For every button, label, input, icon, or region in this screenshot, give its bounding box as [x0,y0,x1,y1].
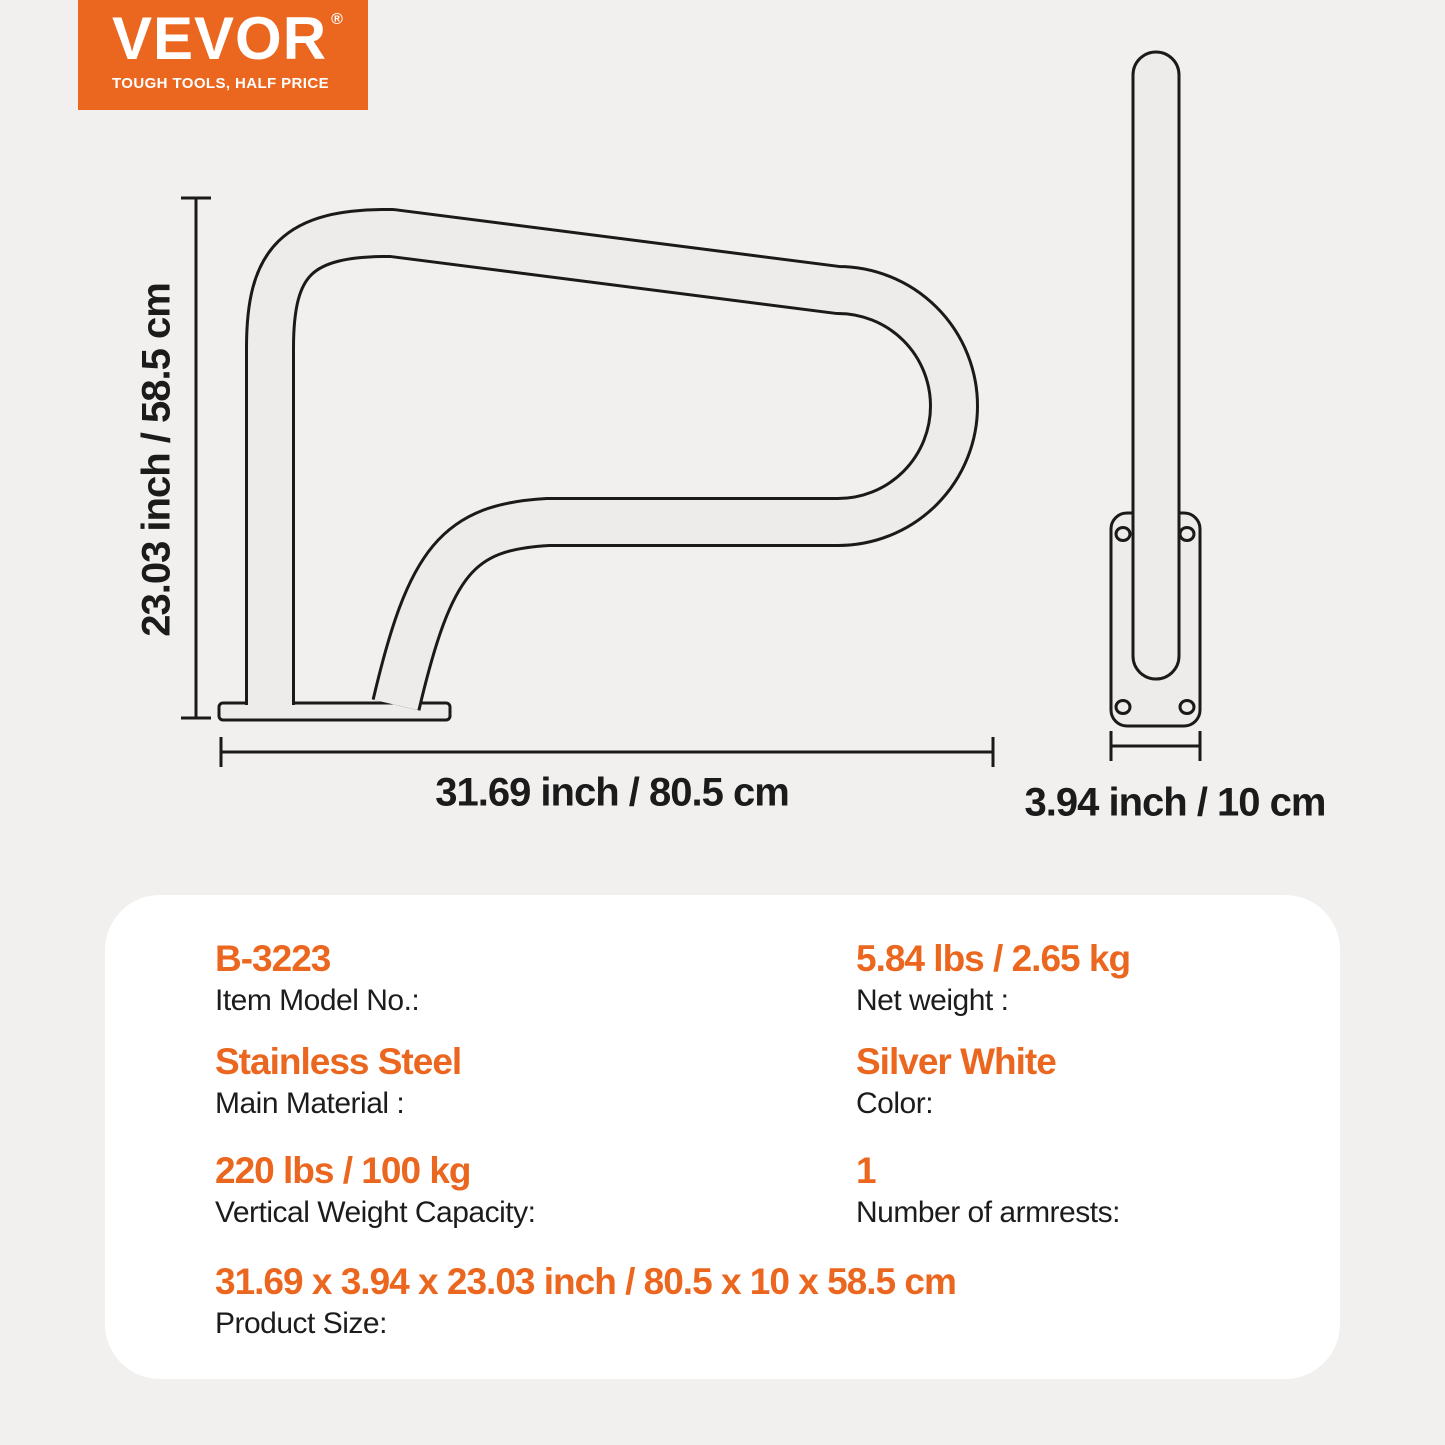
side-tube [1133,52,1179,679]
spec-value-color: Silver White [856,1043,1056,1080]
bolt-hole-top-left [1116,528,1130,541]
spec-label-armrests: Number of armrests: [856,1197,1120,1229]
spec-label-capacity: Vertical Weight Capacity: [215,1197,535,1229]
spec-value-armrests: 1 [856,1152,1120,1189]
spec-value-material: Stainless Steel [215,1043,461,1080]
front-tube-fill [270,233,954,705]
spec-card: B-3223 Item Model No.: Stainless Steel M… [105,895,1340,1379]
spec-item-product-size: 31.69 x 3.94 x 23.03 inch / 80.5 x 10 x … [215,1263,956,1340]
spec-label-product-size: Product Size: [215,1308,956,1340]
spec-label-weight: Net weight : [856,985,1130,1017]
spec-item-color: Silver White Color: [856,1043,1056,1120]
spec-item-material: Stainless Steel Main Material : [215,1043,461,1120]
width-dimension-label: 31.69 inch / 80.5 cm [435,771,789,816]
spec-item-capacity: 220 lbs / 100 kg Vertical Weight Capacit… [215,1152,535,1229]
spec-value-capacity: 220 lbs / 100 kg [215,1152,535,1189]
bolt-hole-bottom-right [1180,701,1194,714]
spec-label-model: Item Model No.: [215,985,419,1017]
bolt-hole-top-right [1180,528,1194,541]
depth-dimension-line [1111,731,1200,761]
depth-dimension-label: 3.94 inch / 10 cm [1025,781,1326,826]
height-dimension-line [181,198,211,718]
spec-label-color: Color: [856,1088,1056,1120]
spec-item-armrests: 1 Number of armrests: [856,1152,1120,1229]
spec-label-material: Main Material : [215,1088,461,1120]
spec-value-weight: 5.84 lbs / 2.65 kg [856,940,1130,977]
height-dimension-label: 23.03 inch / 58.5 cm [135,283,180,637]
spec-value-product-size: 31.69 x 3.94 x 23.03 inch / 80.5 x 10 x … [215,1263,956,1300]
width-dimension-line [221,737,993,767]
product-spec-infographic: VEVOR ® TOUGH TOOLS, HALF PRICE [0,0,1445,1445]
handrail-front-view [219,233,954,720]
bolt-hole-bottom-left [1116,701,1130,714]
spec-item-weight: 5.84 lbs / 2.65 kg Net weight : [856,940,1130,1017]
spec-item-model: B-3223 Item Model No.: [215,940,419,1017]
handrail-side-view [1111,52,1200,726]
spec-value-model: B-3223 [215,940,419,977]
